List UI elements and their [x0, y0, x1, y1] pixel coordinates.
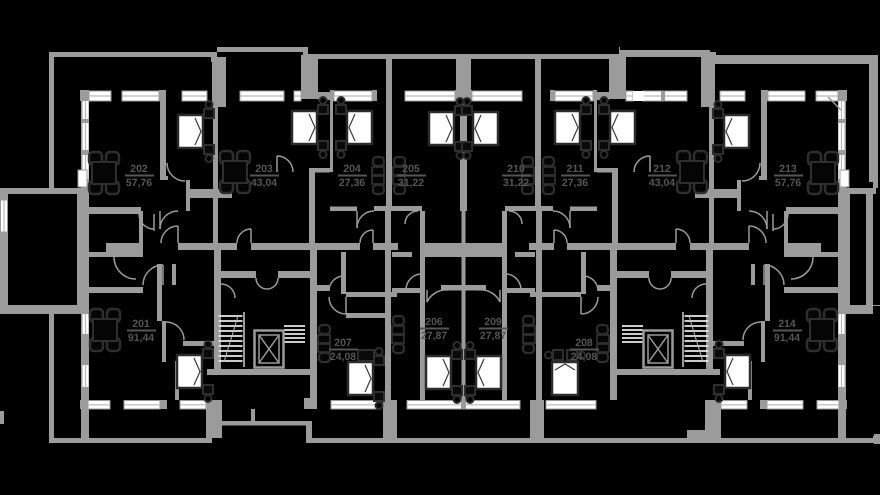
svg-text:91,44: 91,44 — [774, 332, 800, 344]
svg-text:206: 206 — [425, 316, 443, 328]
svg-text:91,44: 91,44 — [128, 332, 154, 344]
svg-text:24,08: 24,08 — [330, 351, 356, 363]
svg-text:43,04: 43,04 — [649, 177, 675, 189]
svg-text:202: 202 — [130, 163, 148, 175]
svg-text:27,36: 27,36 — [339, 177, 365, 189]
svg-text:203: 203 — [255, 163, 273, 175]
svg-text:57,76: 57,76 — [126, 177, 152, 189]
svg-text:27,87: 27,87 — [421, 330, 447, 342]
svg-text:27,87: 27,87 — [480, 330, 506, 342]
svg-text:204: 204 — [343, 163, 361, 175]
svg-text:205: 205 — [402, 163, 420, 175]
svg-text:31,22: 31,22 — [398, 177, 424, 189]
svg-text:214: 214 — [778, 318, 796, 330]
svg-text:209: 209 — [484, 316, 502, 328]
svg-text:43,04: 43,04 — [251, 177, 277, 189]
svg-text:201: 201 — [132, 318, 150, 330]
svg-text:24,08: 24,08 — [571, 351, 597, 363]
svg-text:27,36: 27,36 — [562, 177, 588, 189]
svg-text:212: 212 — [653, 163, 671, 175]
svg-text:57,76: 57,76 — [775, 177, 801, 189]
svg-text:31,22: 31,22 — [503, 177, 529, 189]
svg-text:213: 213 — [779, 163, 797, 175]
svg-text:207: 207 — [334, 337, 352, 349]
svg-text:210: 210 — [507, 163, 525, 175]
svg-text:208: 208 — [575, 337, 593, 349]
svg-text:211: 211 — [567, 163, 584, 175]
